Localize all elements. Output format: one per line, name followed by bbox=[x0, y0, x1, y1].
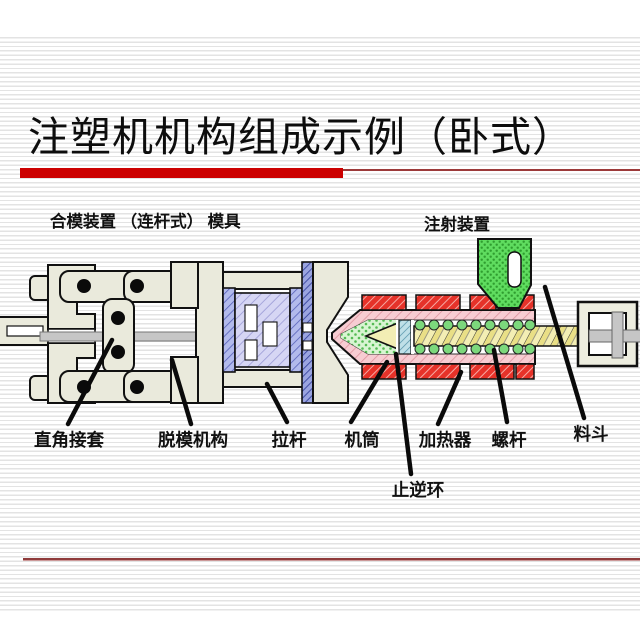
piston-bar bbox=[612, 312, 623, 358]
label-heater: 加热器 bbox=[419, 427, 472, 452]
mold-plate bbox=[290, 288, 302, 372]
hopper-slot bbox=[508, 252, 521, 287]
label-barrel: 机筒 bbox=[345, 427, 380, 452]
moving-platen-flange bbox=[171, 262, 198, 308]
toggle-link bbox=[103, 299, 134, 373]
label-right-angle-socket: 直角接套 bbox=[34, 427, 104, 452]
screw-shaft bbox=[414, 326, 578, 346]
bottom-divider-line bbox=[23, 558, 640, 561]
label-tie-rod: 拉杆 bbox=[272, 427, 307, 452]
injection-unit bbox=[332, 239, 578, 379]
slide: { "slide": { "title": "注塑机机构组成示例（卧式）" },… bbox=[0, 0, 640, 640]
label-demolding-mechanism: 脱模机构 bbox=[158, 427, 228, 452]
label-check-ring: 止逆环 bbox=[392, 477, 445, 502]
label-hopper: 料斗 bbox=[574, 421, 609, 446]
drive-bracket bbox=[578, 302, 640, 366]
moving-platen bbox=[196, 262, 223, 403]
check-ring bbox=[399, 320, 411, 354]
injection-molding-machine-diagram bbox=[0, 0, 640, 640]
label-screw: 螺杆 bbox=[492, 427, 527, 452]
ram-housing-slot bbox=[7, 326, 43, 336]
mold-plate bbox=[223, 288, 235, 372]
